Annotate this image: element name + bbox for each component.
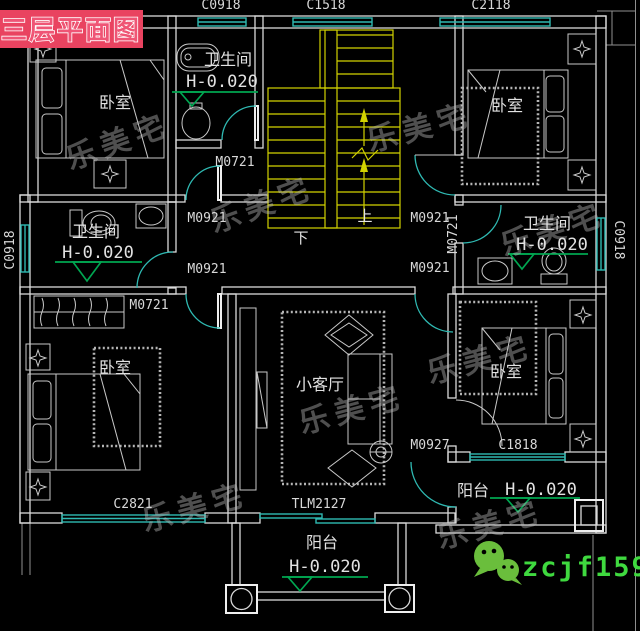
column-left: [226, 585, 257, 613]
window-top-1: [198, 18, 246, 26]
window-left: [21, 225, 29, 272]
wechat-id: zcjf159: [522, 552, 640, 583]
room-label-bedroom-bottom-right: 卧室: [490, 362, 522, 381]
room-label-balcony-right: 阳台: [457, 481, 489, 500]
elevation-label-bathroom-top: H-0.020: [186, 72, 258, 92]
room-label-bathroom-top: 卫生间: [204, 50, 252, 69]
door-tag-m0721-top: M0721: [215, 155, 254, 170]
furniture-bedroom-bottom-left: [26, 296, 160, 500]
door-tag-m0721-bottom-left: M0721: [129, 298, 168, 313]
floor-plan-canvas: 乐美宅 乐美宅 乐美宅 乐美宅 乐美宅 乐美宅 乐美宅 乐美宅 C0918 C1…: [0, 0, 640, 631]
dim-right-c0918: C0918: [611, 220, 626, 259]
door-bath-left: [137, 252, 173, 288]
room-label-bathroom-left: 卫生间: [72, 222, 120, 241]
window-top-3: [440, 18, 550, 26]
room-label-bedroom-top-right: 卧室: [491, 96, 523, 115]
page-title: 三层平面图: [1, 16, 141, 46]
dim-top-c0918: C0918: [201, 0, 240, 13]
door-hall-lower-left: [186, 294, 221, 328]
elevation-balcony-bottom: [282, 577, 368, 591]
watermark-text: 乐美宅: [138, 478, 251, 540]
door-tag-m0921-right-lower: M0921: [410, 261, 449, 276]
wechat-badge: zcjf159: [474, 541, 640, 585]
door-top-bath: [222, 106, 256, 140]
door-tag-m0721-right: M0721: [446, 214, 461, 253]
door-tag-tlm2127: TLM2127: [292, 497, 347, 512]
floor-plan-page: 乐美宅 乐美宅 乐美宅 乐美宅 乐美宅 乐美宅 乐美宅 乐美宅 C0918 C1…: [0, 0, 640, 631]
window-tag-c1818: C1818: [498, 438, 537, 453]
room-label-bathroom-right: 卫生间: [523, 214, 571, 233]
dim-top-c1518: C1518: [306, 0, 345, 13]
room-label-living: 小客厅: [296, 375, 344, 394]
elevation-label-bathroom-left: H-0.020: [62, 243, 134, 263]
door-hall-upper-left: [186, 166, 221, 200]
stair-label-up: 上: [357, 207, 372, 225]
watermark-text: 乐美宅: [61, 108, 174, 178]
room-label-bedroom-top-left: 卧室: [99, 93, 131, 112]
elevation-label-balcony-right: H-0.020: [505, 480, 577, 500]
wechat-icon: [474, 541, 522, 585]
door-tag-m0921-left-upper: M0921: [187, 211, 226, 226]
window-tag-c2821: C2821: [113, 497, 152, 512]
door-tag-m0927: M0927: [410, 438, 449, 453]
window-top-2: [293, 18, 372, 26]
watermark-text: 乐美宅: [423, 330, 536, 392]
door-balcony-right: [411, 462, 456, 507]
watermark-text: 乐美宅: [363, 98, 476, 160]
column-right: [385, 585, 414, 612]
door-bath-right: [463, 205, 501, 243]
column-square: [575, 500, 603, 531]
title-block: 三层平面图: [0, 10, 143, 48]
elevation-bathroom-top: [172, 92, 258, 106]
stair-label-down: 下: [293, 229, 308, 247]
door-bedroom-top-right: [415, 155, 455, 195]
room-label-balcony-bottom: 阳台: [306, 533, 338, 552]
elevation-label-balcony-bottom: H-0.020: [289, 557, 361, 577]
room-label-bedroom-bottom-left: 卧室: [99, 358, 131, 377]
labels: C0918 C1518 C2118 C0918 C0918 卧室 卧室 卧室 卧…: [3, 0, 626, 577]
furniture-bedroom-top-right: [462, 34, 596, 190]
elevation-label-bathroom-right: H-0.020: [516, 235, 588, 255]
elevation-bathroom-left: [55, 262, 142, 281]
sliding-door-tlm2127: [260, 514, 375, 523]
door-hall-lower-right: [415, 294, 453, 332]
window-c1818: [470, 454, 565, 460]
door-tag-m0921-right-upper: M0921: [410, 211, 449, 226]
dim-left-c0918: C0918: [3, 230, 18, 269]
dim-top-c2118: C2118: [471, 0, 510, 13]
door-tag-m0921-left-lower: M0921: [187, 262, 226, 277]
